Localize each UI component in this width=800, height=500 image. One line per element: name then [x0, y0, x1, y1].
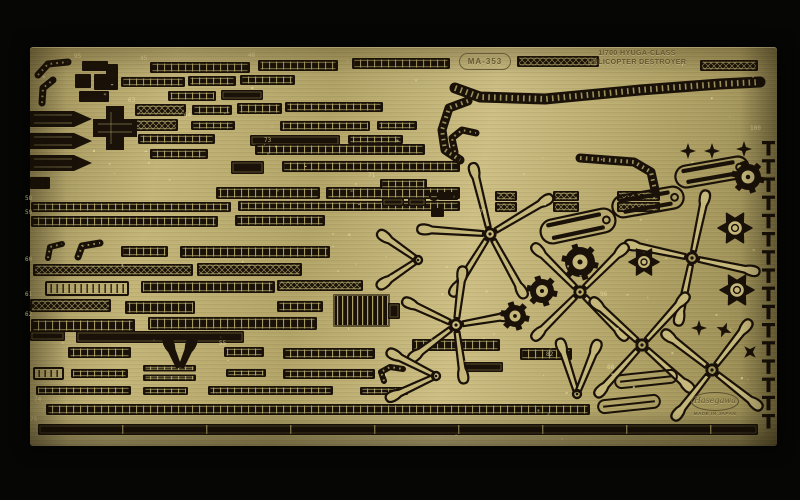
etched-railing-strip [148, 317, 317, 330]
small-etched-part [106, 64, 118, 80]
etched-railing-strip [348, 135, 403, 144]
svg-text:61: 61 [25, 291, 33, 298]
etched-railing-band [381, 367, 403, 381]
part-number-badge: MA-353 [459, 53, 511, 70]
svg-text:82: 82 [546, 351, 554, 358]
rotor-hub-gear-part [500, 301, 530, 330]
etched-railing-strip [285, 102, 383, 112]
etched-railing-strip [255, 144, 425, 155]
etched-railing-strip [30, 299, 111, 312]
etched-railing-strip [408, 198, 426, 206]
etched-railing-strip [283, 369, 375, 379]
etched-railing-strip [495, 202, 517, 212]
star-gear-part [720, 275, 754, 304]
etched-railing-strip [280, 121, 370, 131]
etched-railing-band [580, 158, 655, 190]
etched-railing-strip [150, 62, 250, 73]
etched-railing-strip [33, 264, 193, 276]
grille-cross-part [93, 106, 137, 150]
cross-star-part [704, 143, 720, 159]
etched-railing-strip [231, 161, 264, 174]
svg-text:88: 88 [607, 364, 615, 371]
small-etched-part [79, 91, 109, 102]
etched-railing-strip [388, 303, 400, 319]
svg-text:59: 59 [25, 209, 33, 216]
svg-text:60: 60 [25, 256, 33, 263]
etched-railing-strip [36, 386, 131, 395]
origin-text: MADE IN JAPAN [687, 411, 743, 417]
etched-railing-strip [143, 375, 196, 382]
etched-railing-strip [138, 134, 215, 144]
etched-railing-strip [240, 75, 295, 85]
sheet-title-line2: HELICOPTER DESTROYER [553, 58, 721, 67]
svg-text:73: 73 [264, 137, 272, 144]
small-etched-part [30, 177, 50, 189]
etched-railing-strip [235, 215, 325, 226]
etched-railing-strip [141, 281, 275, 293]
etched-railing-band [38, 62, 68, 75]
cross-star-part [736, 141, 752, 157]
cross-star-part [691, 320, 707, 336]
svg-text:75: 75 [30, 416, 38, 423]
etched-railing-strip [352, 58, 450, 69]
etched-railing-strip [143, 387, 188, 395]
etched-railing-strip [150, 149, 208, 159]
etched-railing-strip [277, 301, 323, 312]
etched-railing-strip [333, 294, 390, 327]
etched-railing-strip [125, 301, 195, 314]
edge-comb-parts [762, 141, 775, 429]
etched-railing-strip [31, 216, 218, 227]
etched-railing-strip [553, 202, 579, 212]
etched-railing-strip [71, 369, 128, 378]
deck-wedge-part [30, 111, 92, 127]
etched-railing-strip [168, 91, 216, 101]
etched-railing-strip [121, 246, 168, 257]
maker-logo: Hasegawa [691, 392, 739, 411]
cross-star-part [744, 346, 755, 357]
etched-railing-strip [31, 319, 135, 332]
etched-railing-strip [282, 161, 460, 172]
star-gear-part [718, 213, 752, 242]
etched-parts-layer: 4546956364735859606162557475778296100887… [0, 0, 800, 500]
etched-railing-strip [135, 104, 186, 116]
svg-text:55: 55 [219, 340, 227, 347]
sheet-title-line1: 1/700 HYUGA-CLASS [553, 49, 721, 58]
etched-railing-strip [188, 76, 236, 86]
folded-rotor-bundle-part [538, 206, 617, 245]
svg-text:63: 63 [128, 97, 136, 104]
etched-railing-strip [31, 202, 231, 212]
cross-star-part [680, 143, 696, 159]
etched-railing-strip [68, 347, 131, 358]
etched-railing-strip [283, 348, 375, 359]
folded-blade-pair-part [375, 228, 422, 292]
etched-railing-strip [208, 386, 333, 395]
svg-text:96: 96 [600, 291, 608, 298]
etched-railing-strip [238, 201, 460, 211]
etched-railing-strip [382, 198, 404, 206]
etched-railing-strip [380, 179, 427, 189]
etched-railing-band [48, 244, 62, 258]
etched-railing-strip [143, 365, 196, 372]
cross-star-part [717, 323, 732, 338]
svg-text:95: 95 [74, 53, 82, 60]
small-etched-part [431, 208, 444, 217]
etched-railing-band [452, 130, 476, 152]
svg-text:77: 77 [479, 209, 487, 216]
small-etched-part [82, 61, 108, 71]
blade-capsule-part [597, 394, 660, 413]
etched-railing-strip [553, 191, 579, 201]
rotor-blades-part [417, 162, 555, 300]
etched-railing-strip [121, 77, 185, 87]
etched-railing-strip [180, 246, 330, 258]
etched-railing-strip [191, 121, 235, 130]
etched-railing-strip [38, 424, 758, 435]
etched-railing-strip [46, 404, 590, 415]
sheet-title: 1/700 HYUGA-CLASS HELICOPTER DESTROYER [553, 49, 721, 67]
etched-railing-strip [377, 121, 417, 130]
deck-wedge-part [30, 133, 92, 149]
etched-railing-strip [221, 90, 263, 100]
svg-text:62: 62 [25, 311, 33, 318]
etched-railing-strip [224, 347, 264, 357]
svg-text:58: 58 [25, 195, 33, 202]
svg-text:64: 64 [184, 112, 192, 119]
etched-railing-band [42, 80, 53, 103]
etched-railing-strip [216, 187, 320, 199]
etched-railing-strip [258, 60, 338, 71]
rotor-hub-gear-part [526, 275, 558, 306]
etched-railing-strip [46, 282, 128, 295]
svg-text:71: 71 [368, 172, 376, 179]
etched-railing-strip [34, 368, 63, 379]
maker-stamp: Hasegawa MADE IN JAPAN [687, 390, 743, 417]
svg-text:46: 46 [248, 52, 256, 59]
etched-railing-band [78, 243, 100, 257]
etched-railing-strip [226, 369, 266, 377]
svg-text:100: 100 [750, 125, 761, 132]
etched-railing-strip [30, 331, 65, 341]
svg-text:45: 45 [140, 55, 148, 62]
svg-text:74: 74 [34, 396, 42, 403]
etched-railing-band [455, 82, 760, 99]
small-etched-part [438, 192, 458, 200]
small-etched-part [75, 74, 91, 88]
etched-railing-strip [495, 191, 517, 201]
etched-railing-strip [192, 105, 232, 115]
photo-stage: 4546956364735859606162557475778296100887… [0, 0, 800, 500]
deck-wedge-part [30, 155, 92, 171]
etched-railing-strip [237, 103, 282, 114]
etched-railing-strip [277, 280, 363, 291]
